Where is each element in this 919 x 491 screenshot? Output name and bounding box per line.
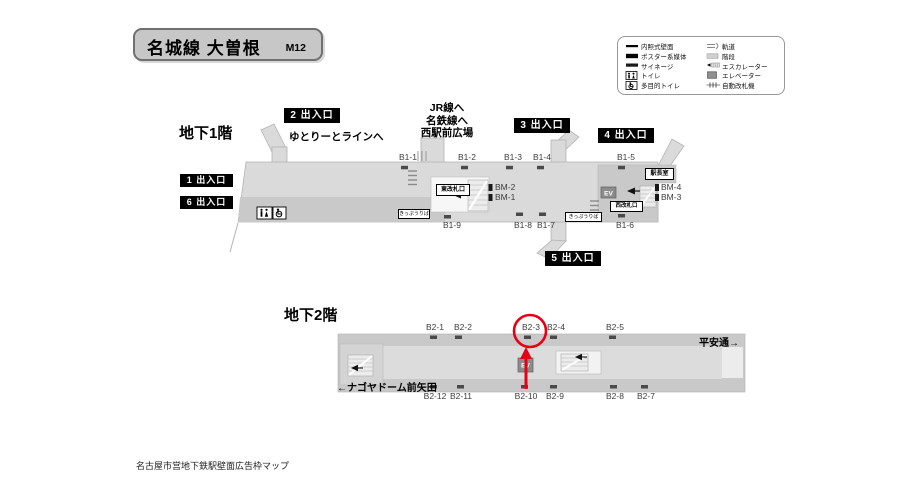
- exit-6-badge: 6 出入口: [180, 196, 233, 209]
- b1-exit16-corridor: [230, 223, 238, 252]
- meitetsu-line-text: 名鉄線へ: [421, 115, 474, 128]
- west-plaza-text: 西駅前広場: [421, 127, 474, 140]
- ad-label-b2-1: B2-1: [426, 322, 444, 332]
- ad-label-b1-9: B1-9: [443, 220, 461, 230]
- legend-item: 自動改札機: [706, 80, 782, 90]
- b2-center-stairs-icon: [556, 351, 601, 374]
- exit-5-badge: 5 出入口: [545, 251, 601, 266]
- legend-item: 内照式壁面: [625, 41, 703, 51]
- lit-wall-icon: [625, 42, 641, 50]
- ad-label-b2-5: B2-5: [606, 322, 624, 332]
- ad-label-b1-7: B1-7: [537, 220, 555, 230]
- ad-label-b2-3: B2-3: [522, 322, 540, 332]
- escalator-icon: [706, 61, 722, 69]
- ad-label-b1-6: B1-6: [616, 220, 634, 230]
- accessible-toilet-legend-icon: [625, 81, 641, 90]
- ad-label-b1-4: B1-4: [533, 152, 551, 162]
- b1-exit4-passage: [658, 139, 684, 166]
- legend-box: 内照式壁面 ポスター系媒体 サイネージ トイレ 多目的トイレ 軌道: [617, 36, 785, 95]
- b2-floor-title: 地下2階: [284, 304, 337, 325]
- ad-label-b1-2: B1-2: [458, 152, 476, 162]
- legend-item: ポスター系媒体: [625, 51, 703, 61]
- jr-line-text: JR線へ: [421, 102, 474, 115]
- exit-4-badge: 4 出入口: [598, 128, 654, 143]
- ad-label-b2-8: B2-8: [606, 391, 624, 401]
- ad-label-b2-2: B2-2: [454, 322, 472, 332]
- nagoya-dome-direction: ←ナゴヤドーム前矢田: [337, 379, 437, 394]
- legend-item: 階段: [706, 51, 782, 61]
- west-gate-box: 西改札口: [610, 201, 643, 212]
- exit-2-badge: 2 出入口: [284, 108, 340, 123]
- b2-left-stairs-icon: [348, 355, 373, 376]
- ad-label-b1-3: B1-3: [504, 152, 522, 162]
- ad-label-b2-7: B2-7: [637, 391, 655, 401]
- ad-label-b1-5: B1-5: [617, 152, 635, 162]
- elevator-legend-icon: [706, 71, 722, 79]
- poster-media-icon: [625, 52, 641, 60]
- heian-dori-direction: 平安通→: [699, 334, 739, 349]
- b2-elevator-icon: EV: [518, 358, 533, 372]
- b1-bm3-mark: [655, 194, 659, 201]
- ticket-gate-icon: [706, 81, 722, 89]
- ad-label-bm-4: BM-4: [661, 182, 681, 192]
- legend-item: サイネージ: [625, 61, 703, 71]
- station-wall-ad-map-page: EV: [0, 0, 919, 491]
- exit-1-badge: 1 出入口: [180, 174, 233, 187]
- stairs-icon: [706, 52, 722, 60]
- b1-bm4-mark: [655, 184, 659, 191]
- east-gate-box: 東改札口: [436, 184, 470, 196]
- ad-label-b2-12: B2-12: [424, 391, 447, 401]
- ad-label-b2-4: B2-4: [547, 322, 565, 332]
- ad-label-b1-1: B1-1: [399, 152, 417, 162]
- ad-label-bm-3: BM-3: [661, 192, 681, 202]
- b1-east-stairs-icon: [468, 180, 488, 211]
- ad-label-bm-2: BM-2: [495, 182, 515, 192]
- b2-right-gap: [722, 347, 743, 378]
- map-caption: 名古屋市営地下鉄駅壁面広告枠マップ: [136, 459, 289, 472]
- toilet-icon: [257, 207, 272, 219]
- legend-item: 多目的トイレ: [625, 80, 703, 90]
- b1-bm1-mark: [489, 194, 493, 201]
- exit-3-badge: 3 出入口: [514, 118, 570, 133]
- legend-item: 軌道: [706, 41, 782, 51]
- accessible-toilet-icon: [273, 207, 286, 219]
- b1-exit3-stub: [551, 140, 566, 164]
- yutorito-line-direction: ゆとりーとラインへ: [289, 129, 384, 144]
- track-icon: [706, 42, 722, 50]
- ad-label-b1-8: B1-8: [514, 220, 532, 230]
- legend-item: トイレ: [625, 70, 703, 80]
- ad-label-b2-10: B2-10: [515, 391, 538, 401]
- ad-label-bm-1: BM-1: [495, 192, 515, 202]
- b2-elevator-label: EV: [521, 363, 530, 370]
- b1-bm2-mark: [489, 184, 493, 191]
- b1-elevator-icon: EV: [601, 187, 616, 198]
- signage-icon: [625, 61, 641, 69]
- legend-item: エスカレーター: [706, 61, 782, 71]
- legend-item: エレベーター: [706, 70, 782, 80]
- ad-label-b2-11: B2-11: [450, 391, 472, 401]
- b1-exit2-stub: [272, 147, 287, 164]
- ticket-office-west-box: きっぷうりば: [565, 212, 602, 222]
- ticket-office-east-box: きっぷうりば: [398, 209, 430, 219]
- toilet-legend-icon: [625, 71, 641, 80]
- jr-meitetsu-direction: JR線へ 名鉄線へ 西駅前広場: [421, 102, 474, 140]
- b1-jr-passage: [421, 138, 444, 164]
- ad-label-b2-9: B2-9: [546, 391, 564, 401]
- b1-floor-title: 地下1階: [179, 122, 232, 143]
- station-master-room-box: 駅長室: [645, 168, 674, 180]
- b1-elevator-label: EV: [604, 191, 613, 198]
